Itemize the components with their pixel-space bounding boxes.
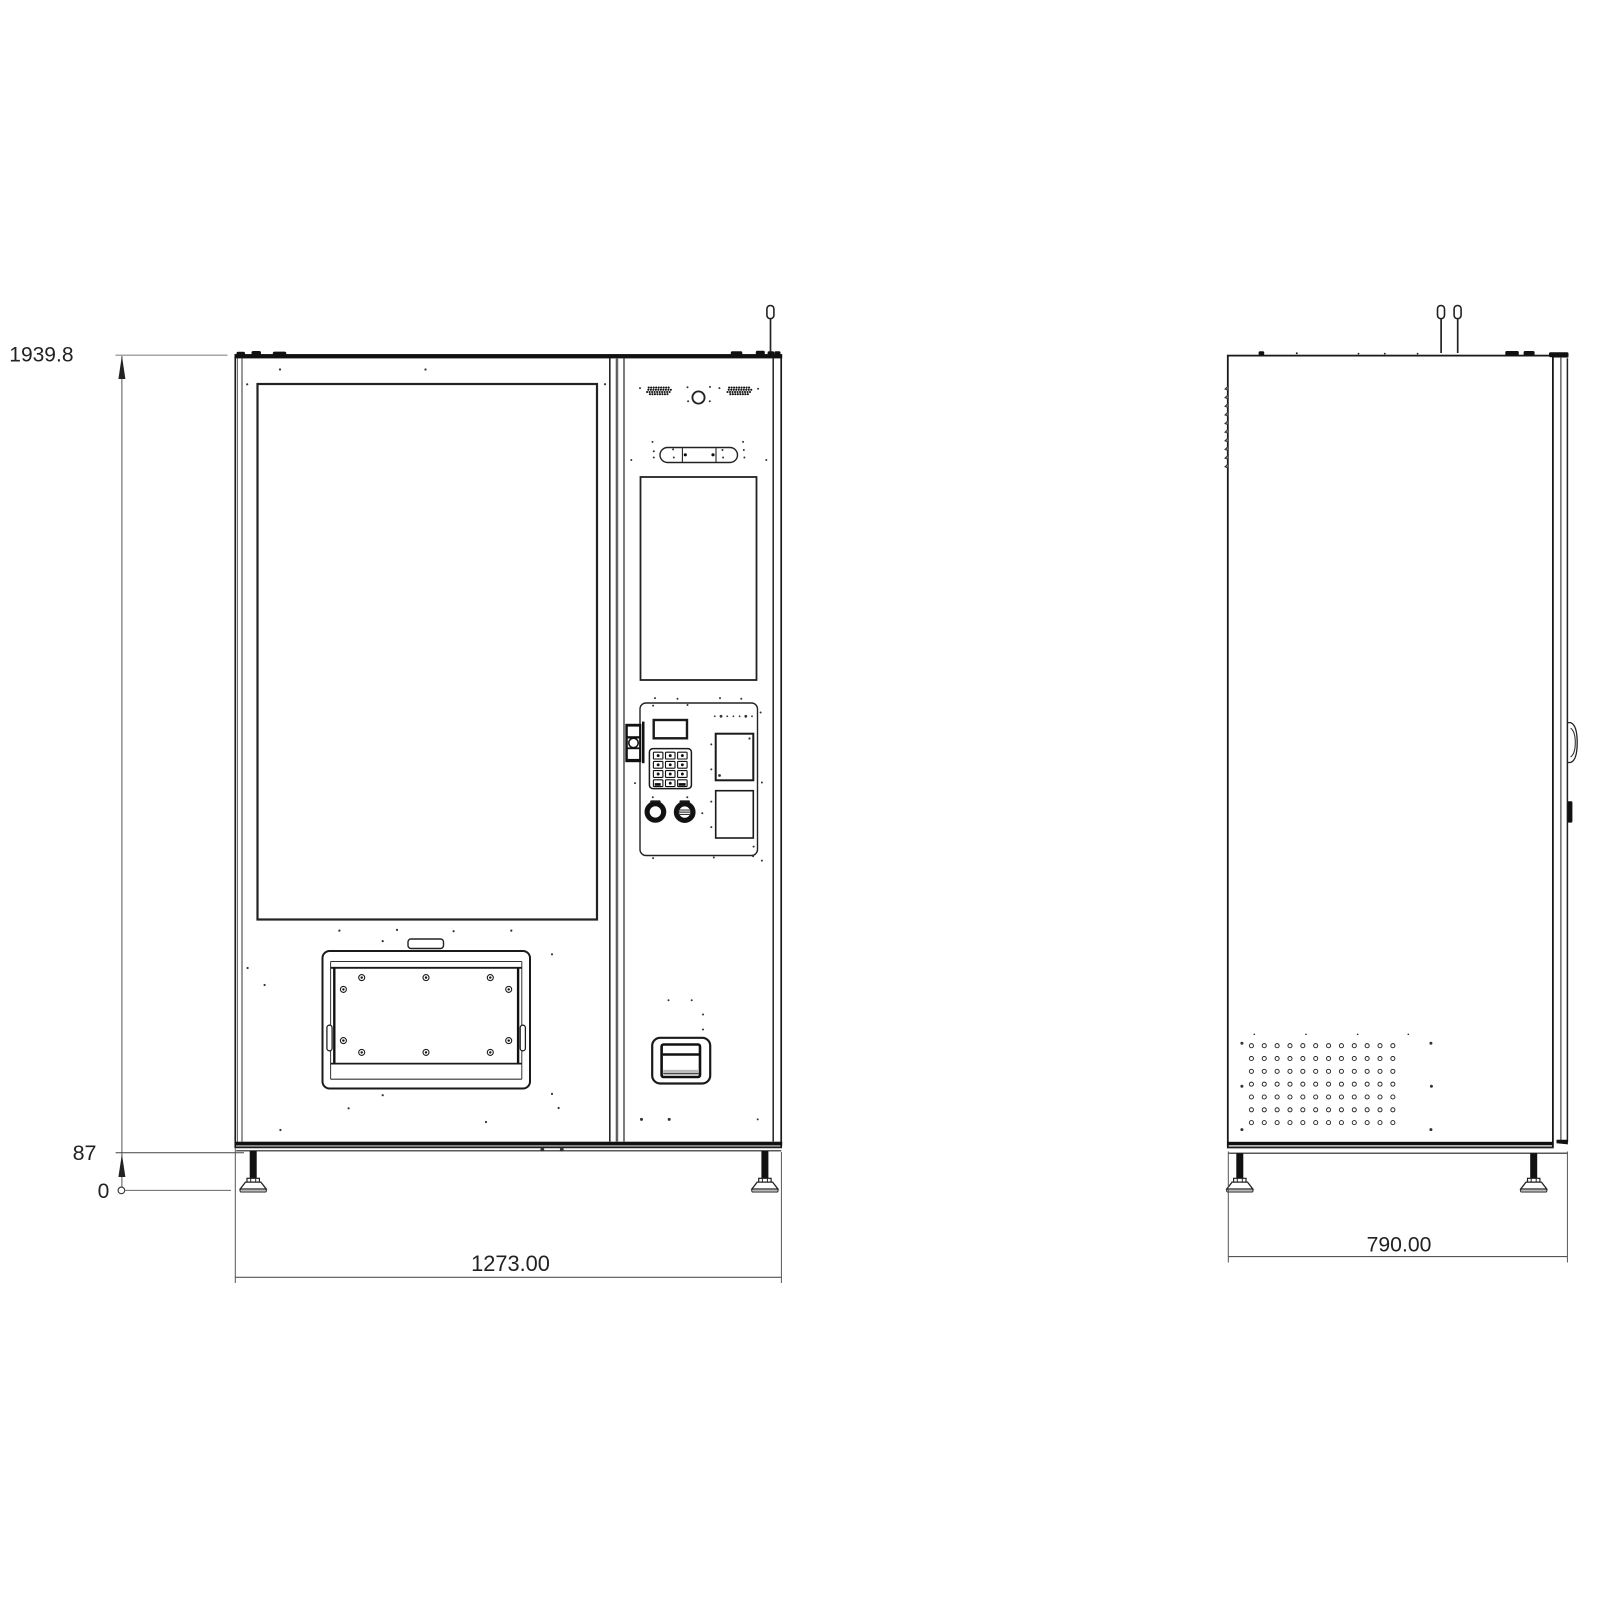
svg-text:790.00: 790.00 [1367, 1233, 1432, 1256]
svg-text:0: 0 [98, 1180, 110, 1203]
svg-text:1273.00: 1273.00 [471, 1251, 550, 1276]
svg-text:87: 87 [73, 1141, 97, 1165]
svg-text:1939.8: 1939.8 [9, 343, 73, 366]
